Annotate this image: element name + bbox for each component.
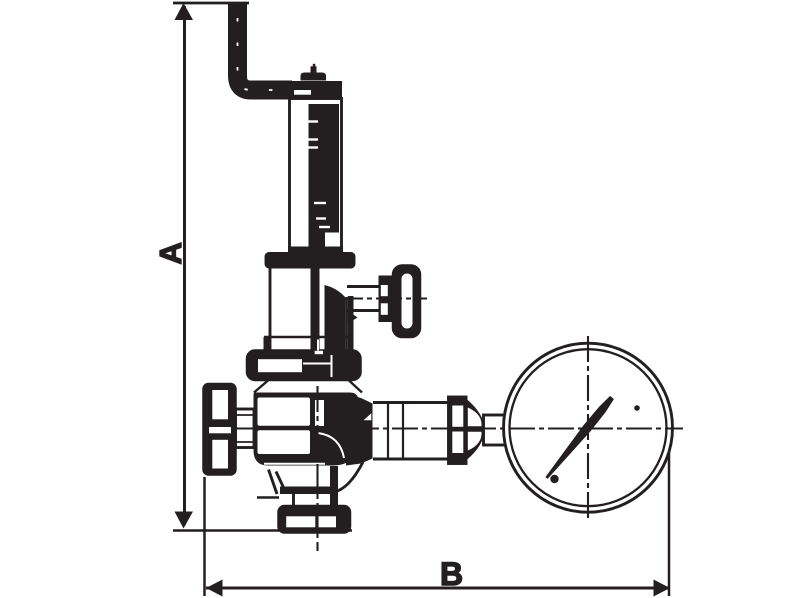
svg-text:A: A [153,242,188,264]
svg-text:B: B [440,556,463,592]
